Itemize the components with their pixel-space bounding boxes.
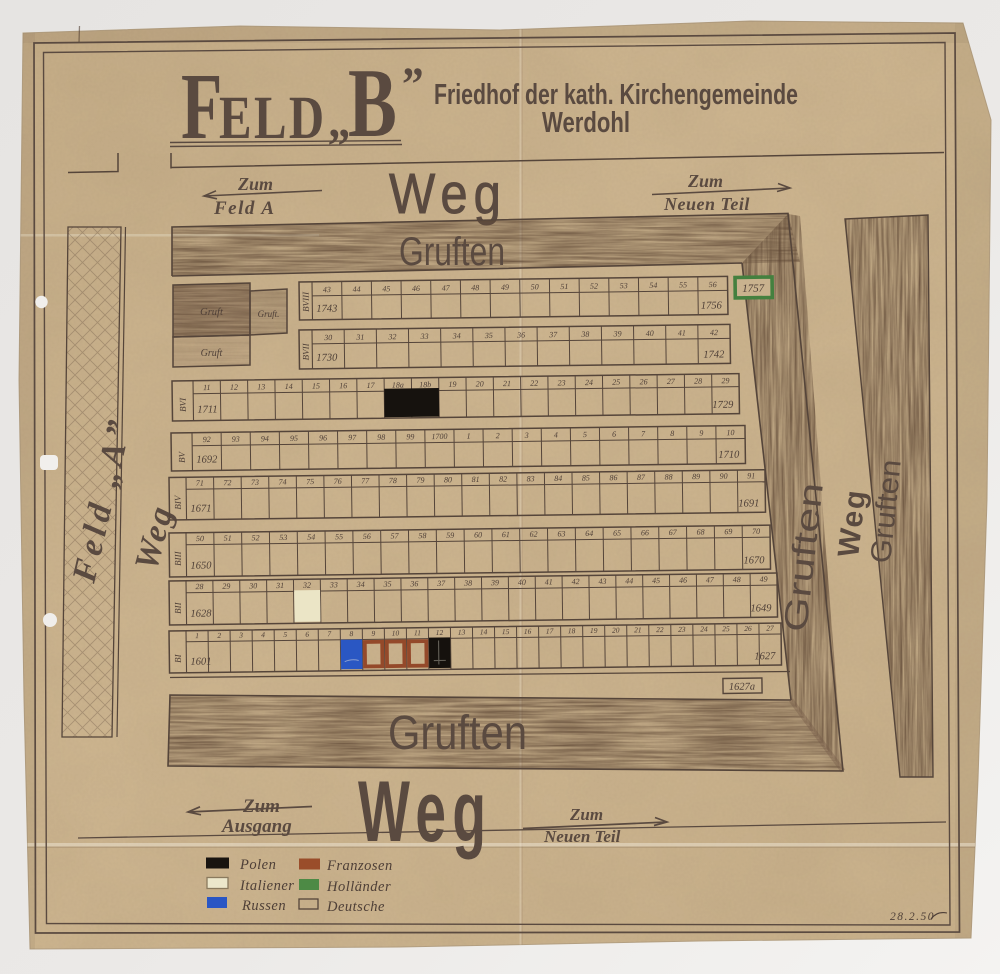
svg-text:91: 91: [747, 471, 755, 480]
svg-text:19: 19: [448, 380, 456, 389]
svg-text:Gruft: Gruft: [201, 348, 223, 359]
svg-text:23: 23: [557, 378, 565, 387]
svg-text:46: 46: [679, 576, 687, 585]
svg-text:26: 26: [639, 377, 647, 386]
svg-text:10: 10: [726, 428, 734, 437]
svg-text:11: 11: [203, 383, 211, 392]
svg-text:1650: 1650: [190, 560, 212, 571]
svg-text:80: 80: [444, 475, 452, 484]
svg-text:Gruften: Gruften: [388, 707, 527, 760]
svg-text:BI: BI: [173, 653, 183, 663]
svg-text:Italiener: Italiener: [239, 878, 294, 894]
svg-text:3: 3: [238, 631, 243, 640]
svg-text:1627a: 1627a: [729, 682, 755, 693]
svg-text:34: 34: [356, 580, 365, 589]
svg-text:27: 27: [766, 624, 774, 633]
svg-text:88: 88: [664, 472, 672, 481]
svg-text:48: 48: [733, 575, 741, 584]
svg-text:45: 45: [382, 284, 390, 293]
svg-text:6: 6: [612, 430, 616, 439]
svg-text:25: 25: [722, 624, 730, 633]
svg-text:BVII: BVII: [301, 342, 311, 360]
svg-text:2: 2: [496, 431, 500, 440]
svg-text:Franzosen: Franzosen: [326, 858, 393, 874]
svg-text:78: 78: [389, 476, 397, 485]
svg-text:68: 68: [696, 527, 704, 536]
svg-text:58: 58: [418, 531, 426, 540]
svg-text:1743: 1743: [316, 304, 337, 315]
svg-text:72: 72: [223, 478, 231, 487]
svg-text:41: 41: [545, 577, 553, 586]
svg-text:22: 22: [530, 379, 538, 388]
svg-text:27: 27: [667, 377, 676, 386]
svg-text:39: 39: [490, 578, 499, 587]
svg-text:18: 18: [568, 626, 576, 635]
svg-text:86: 86: [609, 473, 617, 482]
svg-text:20: 20: [612, 626, 620, 635]
svg-text:75: 75: [306, 477, 314, 486]
svg-text:52: 52: [590, 282, 598, 291]
svg-text:83: 83: [527, 474, 535, 483]
svg-text:67: 67: [669, 528, 678, 537]
svg-text:BIII: BIII: [173, 550, 183, 566]
svg-text:74: 74: [279, 477, 287, 486]
svg-text:97: 97: [348, 433, 357, 442]
svg-text:30: 30: [323, 333, 332, 342]
svg-text:52: 52: [252, 533, 260, 542]
svg-text:22: 22: [656, 625, 664, 634]
svg-text:29: 29: [721, 376, 729, 385]
svg-text:5: 5: [583, 430, 587, 439]
svg-text:1730: 1730: [316, 352, 338, 363]
svg-text:54: 54: [307, 533, 315, 542]
svg-text:55: 55: [335, 532, 343, 541]
svg-text:94: 94: [261, 434, 269, 443]
svg-text:1627: 1627: [754, 651, 776, 662]
svg-text:32: 32: [387, 332, 396, 341]
svg-text:55: 55: [679, 280, 687, 289]
svg-text:1692: 1692: [196, 454, 218, 465]
svg-text:47: 47: [706, 575, 715, 584]
svg-text:36: 36: [409, 579, 418, 588]
svg-text:1700: 1700: [431, 432, 447, 441]
svg-text:18b: 18b: [419, 380, 431, 389]
svg-text:BII: BII: [173, 601, 183, 614]
svg-text:10: 10: [392, 628, 400, 637]
svg-text:BV: BV: [177, 450, 187, 463]
svg-text:33: 33: [329, 580, 338, 589]
svg-text:51: 51: [560, 282, 568, 291]
svg-text:33: 33: [420, 332, 429, 341]
svg-text:56: 56: [709, 280, 717, 289]
svg-text:8: 8: [349, 629, 353, 638]
svg-text:95: 95: [290, 434, 298, 443]
svg-text:BVI: BVI: [178, 397, 188, 412]
svg-text:BIV: BIV: [173, 494, 183, 510]
svg-text:37: 37: [436, 579, 446, 588]
svg-text:84: 84: [554, 474, 562, 483]
svg-text:34: 34: [452, 331, 461, 340]
svg-text:8: 8: [670, 429, 674, 438]
svg-text:Feld A: Feld A: [213, 198, 276, 219]
svg-text:3: 3: [524, 431, 529, 440]
svg-text:50: 50: [531, 282, 539, 291]
svg-text:Russen: Russen: [241, 898, 286, 914]
svg-text:48: 48: [471, 283, 479, 292]
svg-text:45: 45: [652, 576, 660, 585]
svg-text:Zum: Zum: [242, 796, 280, 817]
svg-text:13: 13: [257, 382, 265, 391]
svg-text:76: 76: [334, 477, 342, 486]
svg-text:13: 13: [458, 628, 466, 637]
svg-text:61: 61: [502, 530, 510, 539]
svg-text:1742: 1742: [703, 349, 725, 360]
svg-text:73: 73: [251, 478, 259, 487]
svg-text:1757: 1757: [742, 283, 765, 295]
svg-text:”: ”: [402, 57, 424, 111]
svg-text:21: 21: [503, 379, 511, 388]
svg-text:47: 47: [442, 284, 451, 293]
svg-text:96: 96: [319, 433, 327, 442]
svg-text:66: 66: [641, 528, 649, 537]
svg-text:11: 11: [414, 628, 421, 637]
svg-text:41: 41: [678, 328, 686, 337]
svg-text:77: 77: [361, 476, 370, 485]
svg-text:90: 90: [720, 472, 728, 481]
svg-text:82: 82: [499, 475, 507, 484]
svg-text:62: 62: [530, 530, 538, 539]
svg-text:Gruft.: Gruft.: [258, 309, 280, 319]
svg-text:23: 23: [678, 625, 686, 634]
svg-text:Neuen Teil: Neuen Teil: [663, 194, 750, 214]
svg-text:15: 15: [312, 382, 320, 391]
svg-text:Zum: Zum: [569, 805, 603, 824]
svg-text:53: 53: [279, 533, 287, 542]
svg-text:26: 26: [744, 624, 752, 633]
svg-text:38: 38: [463, 579, 472, 588]
svg-text:BVIII: BVIII: [301, 291, 311, 312]
svg-text:17: 17: [367, 381, 376, 390]
svg-text:14: 14: [285, 382, 293, 391]
svg-text:24: 24: [700, 624, 708, 633]
svg-text:31: 31: [275, 581, 284, 590]
svg-text:1671: 1671: [190, 503, 211, 514]
svg-text:14: 14: [480, 627, 488, 636]
svg-text:53: 53: [620, 281, 628, 290]
svg-text:Zum: Zum: [687, 171, 723, 191]
svg-text:42: 42: [710, 328, 718, 337]
svg-text:49: 49: [501, 283, 509, 292]
svg-text:19: 19: [590, 626, 598, 635]
svg-text:28.2.50: 28.2.50: [890, 911, 935, 923]
svg-text:Zum: Zum: [237, 174, 273, 194]
svg-text:92: 92: [203, 435, 211, 444]
svg-text:Holländer: Holländer: [326, 879, 391, 895]
svg-text:64: 64: [585, 529, 593, 538]
svg-text:40: 40: [518, 578, 526, 587]
svg-text:42: 42: [571, 577, 579, 586]
svg-text:46: 46: [412, 284, 420, 293]
svg-text:71: 71: [196, 479, 204, 488]
svg-text:4: 4: [554, 430, 558, 439]
svg-text:1756: 1756: [701, 300, 723, 311]
svg-text:69: 69: [724, 527, 732, 536]
svg-text:25: 25: [612, 378, 620, 387]
svg-text:Weg: Weg: [389, 163, 507, 226]
svg-text:40: 40: [646, 329, 654, 338]
svg-text:1649: 1649: [750, 603, 772, 614]
svg-text:Deutsche: Deutsche: [326, 899, 385, 915]
svg-text:79: 79: [416, 476, 424, 485]
svg-text:1711: 1711: [197, 404, 217, 415]
svg-text:12: 12: [436, 628, 444, 637]
svg-text:37: 37: [548, 330, 558, 339]
svg-text:1628: 1628: [190, 608, 212, 619]
svg-text:35: 35: [484, 331, 493, 340]
svg-text:20: 20: [476, 379, 484, 388]
svg-text:1: 1: [467, 432, 471, 441]
svg-text:93: 93: [232, 435, 240, 444]
svg-text:1: 1: [195, 631, 199, 640]
svg-text:35: 35: [383, 580, 392, 589]
svg-text:31: 31: [355, 333, 364, 342]
svg-text:85: 85: [582, 473, 590, 482]
svg-text:44: 44: [625, 576, 633, 585]
svg-text:1710: 1710: [718, 450, 740, 461]
svg-text:28: 28: [195, 582, 203, 591]
svg-text:2: 2: [217, 631, 221, 640]
svg-text:36: 36: [516, 331, 525, 340]
svg-text:16: 16: [339, 381, 347, 390]
svg-text:39: 39: [613, 329, 622, 338]
svg-text:49: 49: [760, 575, 768, 584]
svg-text:6: 6: [305, 630, 309, 639]
svg-text:89: 89: [692, 472, 700, 481]
svg-text:43: 43: [598, 577, 606, 586]
svg-text:Weg: Weg: [358, 765, 492, 860]
svg-text:Gruft: Gruft: [200, 307, 224, 318]
svg-text:Gruften: Gruften: [399, 230, 505, 274]
svg-text:54: 54: [649, 281, 657, 290]
svg-text:60: 60: [474, 530, 482, 539]
svg-text:9: 9: [699, 429, 703, 438]
svg-text:15: 15: [502, 627, 510, 636]
svg-text:51: 51: [224, 534, 232, 543]
svg-text:4: 4: [261, 630, 265, 639]
svg-text:5: 5: [283, 630, 287, 639]
svg-text:1670: 1670: [743, 555, 765, 566]
svg-text:81: 81: [471, 475, 479, 484]
svg-text:70: 70: [752, 527, 760, 536]
svg-text:98: 98: [377, 433, 385, 442]
svg-text:87: 87: [637, 473, 646, 482]
svg-text:50: 50: [196, 534, 204, 543]
svg-text:Polen: Polen: [239, 857, 276, 873]
svg-text:1601: 1601: [190, 656, 211, 667]
svg-text:56: 56: [363, 532, 371, 541]
svg-text:1729: 1729: [712, 400, 734, 411]
svg-text:9: 9: [371, 629, 375, 638]
svg-text:24: 24: [585, 378, 593, 387]
svg-text:1691: 1691: [738, 498, 759, 509]
svg-text:44: 44: [353, 285, 361, 294]
svg-text:57: 57: [391, 531, 400, 540]
svg-text:65: 65: [613, 529, 621, 538]
svg-text:21: 21: [634, 625, 642, 634]
svg-text:29: 29: [222, 582, 230, 591]
svg-text:7: 7: [327, 629, 331, 638]
svg-text:63: 63: [557, 529, 565, 538]
svg-text:18a: 18a: [392, 380, 404, 389]
svg-text:99: 99: [406, 432, 414, 441]
svg-text:17: 17: [546, 626, 554, 635]
svg-text:32: 32: [302, 581, 311, 590]
svg-text:30: 30: [248, 581, 257, 590]
svg-text:28: 28: [694, 377, 702, 386]
svg-text:38: 38: [580, 330, 589, 339]
svg-text:43: 43: [323, 285, 331, 294]
svg-text:12: 12: [230, 383, 238, 392]
svg-text:59: 59: [446, 531, 454, 540]
svg-text:16: 16: [524, 627, 532, 636]
svg-text:Werdohl: Werdohl: [542, 107, 630, 139]
